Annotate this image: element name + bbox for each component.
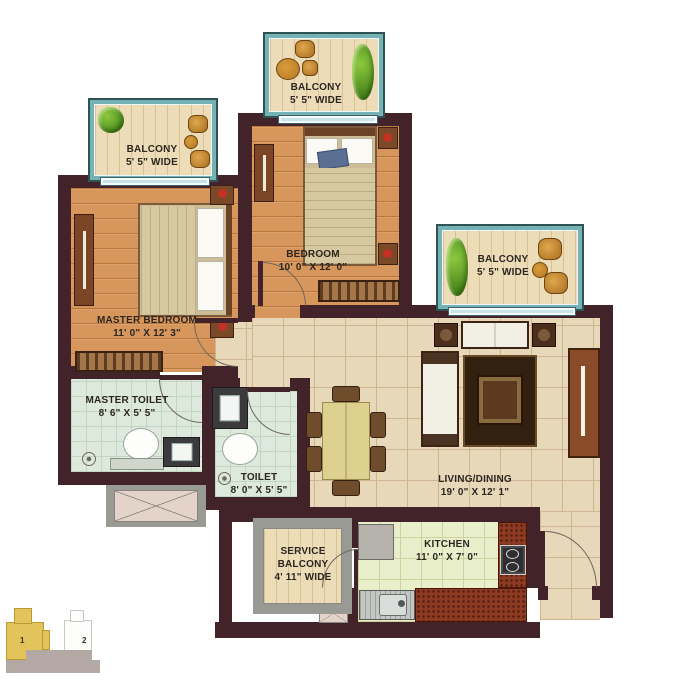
- dining-chair: [370, 446, 386, 472]
- wall: [527, 512, 540, 588]
- washbasin: [163, 437, 200, 467]
- sink-faucet: [398, 600, 405, 607]
- label-service-balcony: SERVICE BALCONY 4' 11" WIDE: [260, 545, 346, 584]
- room-name: BALCONY: [443, 253, 563, 266]
- label-bedroom: BEDROOM 10' 0" X 12' 0": [243, 248, 383, 274]
- label-master-bedroom: MASTER BEDROOM 11' 0" X 12' 3": [67, 314, 227, 340]
- shaft: [114, 490, 198, 522]
- toilet-wc: [123, 428, 159, 460]
- room-name: BEDROOM: [243, 248, 383, 261]
- bed-headboard: [305, 128, 375, 136]
- room-name: SERVICE: [260, 545, 346, 558]
- master-dresser: [74, 214, 94, 306]
- key-plan-unit-2-shape: [70, 610, 84, 622]
- side-table: [532, 323, 556, 347]
- wall: [399, 113, 412, 305]
- master-bed-pillow: [197, 208, 224, 258]
- balcony-chair-icon: [295, 40, 315, 58]
- label-toilet: TOILET 8' 0" X 5' 5": [204, 471, 314, 497]
- room-dims: 8' 6" X 5' 5": [62, 407, 192, 420]
- room-dims: 8' 0" X 5' 5": [204, 484, 314, 497]
- key-plan: 1 2: [0, 598, 115, 678]
- dining-chair: [306, 446, 322, 472]
- label-living-dining: LIVING/DINING 19' 0" X 12' 1": [395, 473, 555, 499]
- washbasin: [212, 387, 248, 429]
- wall: [215, 622, 540, 638]
- label-kitchen: KITCHEN 11' 0" X 7' 0": [382, 538, 512, 564]
- room-dims: 11' 0" X 7' 0": [382, 551, 512, 564]
- coffee-table: [477, 375, 523, 425]
- sofa-two-seat: [461, 321, 529, 349]
- balcony-table-icon: [276, 58, 300, 80]
- label-balcony-top-center: BALCONY 5' 5" WIDE: [256, 81, 376, 107]
- floor-plan: BALCONY 5' 5" WIDE BALCONY 5' 5" WIDE BA…: [0, 0, 698, 682]
- master-bed-pillow: [197, 261, 224, 311]
- lamp-icon: [383, 133, 392, 142]
- lamp-icon: [218, 189, 227, 198]
- room-name: MASTER TOILET: [62, 394, 192, 407]
- window: [100, 177, 210, 186]
- room-dims: 5' 5" WIDE: [443, 266, 563, 279]
- vanity-counter: [110, 458, 164, 470]
- room-name: LIVING/DINING: [395, 473, 555, 486]
- dining-chair: [332, 386, 360, 402]
- master-bed-headboard: [226, 205, 232, 315]
- wall: [219, 497, 232, 622]
- wall: [58, 472, 215, 485]
- toilet-wc: [222, 433, 258, 465]
- label-master-toilet: MASTER TOILET 8' 6" X 5' 5": [62, 394, 192, 420]
- window: [448, 307, 576, 316]
- dining-chair: [370, 412, 386, 438]
- room-name: BALCONY: [92, 143, 212, 156]
- tv-screen: [581, 366, 585, 436]
- balcony-chair-icon: [302, 60, 318, 76]
- room-name: TOILET: [204, 471, 314, 484]
- room-name: KITCHEN: [382, 538, 512, 551]
- room-name: MASTER BEDROOM: [67, 314, 227, 327]
- room-dims: 19' 0" X 12' 1": [395, 486, 555, 499]
- key-plan-unit-1-number: 1: [20, 636, 24, 645]
- master-bed-blanket: [141, 206, 196, 314]
- door-jamb: [592, 586, 602, 600]
- lamp-icon: [383, 249, 392, 258]
- wall: [238, 305, 255, 318]
- room-name: BALCONY: [256, 81, 376, 94]
- master-wardrobe: [75, 351, 163, 372]
- wall: [600, 305, 613, 618]
- key-plan-unit-1-shape: [14, 608, 32, 624]
- wardrobe: [318, 280, 400, 302]
- label-balcony-top-left: BALCONY 5' 5" WIDE: [92, 143, 212, 169]
- label-balcony-right: BALCONY 5' 5" WIDE: [443, 253, 563, 279]
- wall: [238, 113, 252, 322]
- dresser: [254, 144, 274, 202]
- key-plan-unit-1-shape: [42, 630, 50, 650]
- balcony-chair-icon: [188, 115, 208, 133]
- dining-table: [322, 402, 370, 480]
- room-dims: 5' 5" WIDE: [256, 94, 376, 107]
- dining-chair: [306, 412, 322, 438]
- key-plan-base: [6, 660, 100, 673]
- sofa-lounge: [421, 351, 459, 447]
- key-plan-unit-2-number: 2: [82, 636, 86, 645]
- dining-chair: [332, 480, 360, 496]
- kitchen-counter: [415, 588, 527, 622]
- door-jamb: [538, 586, 548, 600]
- plant-icon: [98, 107, 124, 133]
- room-name: BALCONY: [260, 558, 346, 571]
- room-dims: 11' 0" X 12' 3": [67, 327, 227, 340]
- room-dims: 10' 0" X 12' 0": [243, 261, 383, 274]
- side-table: [434, 323, 458, 347]
- shower-icon: [82, 452, 96, 466]
- room-dims: 5' 5" WIDE: [92, 156, 212, 169]
- window: [278, 115, 378, 124]
- room-dims: 4' 11" WIDE: [260, 571, 346, 584]
